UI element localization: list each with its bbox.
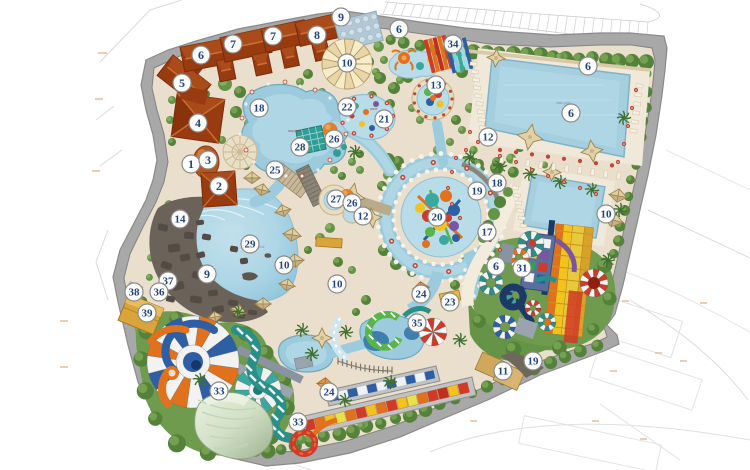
svg-text:24: 24	[324, 387, 336, 399]
svg-text:18: 18	[492, 178, 504, 190]
svg-text:10: 10	[332, 279, 344, 291]
svg-text:10: 10	[601, 209, 613, 221]
svg-text:17: 17	[482, 227, 494, 239]
svg-text:13: 13	[431, 80, 443, 92]
svg-text:21: 21	[379, 114, 390, 126]
svg-text:10: 10	[279, 260, 291, 272]
svg-text:34: 34	[448, 39, 460, 51]
svg-text:wave: wave	[370, 107, 378, 111]
svg-text:18: 18	[254, 103, 266, 115]
svg-text:2: 2	[216, 179, 222, 193]
svg-text:6: 6	[198, 48, 204, 62]
svg-text:6: 6	[568, 106, 574, 120]
svg-text:33: 33	[293, 417, 305, 429]
svg-text:20: 20	[432, 212, 444, 224]
svg-text:26: 26	[329, 134, 341, 146]
svg-text:11: 11	[498, 366, 508, 378]
svg-text:23: 23	[445, 297, 457, 309]
svg-text:6: 6	[585, 59, 591, 73]
svg-text:26: 26	[347, 198, 359, 210]
svg-text:38: 38	[129, 287, 141, 299]
svg-text:31: 31	[517, 263, 528, 275]
svg-text:19: 19	[472, 186, 484, 198]
svg-text:24: 24	[416, 289, 428, 301]
svg-text:7: 7	[230, 37, 236, 51]
svg-text:6: 6	[493, 259, 499, 273]
svg-text:9: 9	[338, 10, 344, 24]
svg-text:19: 19	[528, 356, 540, 368]
svg-text:9: 9	[204, 267, 210, 281]
svg-text:22: 22	[342, 102, 354, 114]
svg-text:4: 4	[195, 116, 201, 130]
svg-text:10: 10	[342, 58, 354, 70]
svg-text:25: 25	[270, 165, 282, 177]
svg-text:14: 14	[175, 214, 187, 226]
svg-text:lazy river: lazy river	[288, 129, 302, 133]
svg-text:6: 6	[396, 22, 402, 36]
svg-text:35: 35	[412, 318, 424, 330]
svg-text:7: 7	[270, 29, 276, 43]
svg-text:28: 28	[295, 142, 307, 154]
svg-text:12: 12	[358, 211, 370, 223]
svg-text:29: 29	[245, 239, 257, 251]
svg-text:36: 36	[154, 287, 166, 299]
svg-text:27: 27	[331, 194, 343, 206]
svg-text:5: 5	[179, 76, 185, 90]
svg-text:39: 39	[142, 308, 154, 320]
svg-text:3: 3	[205, 153, 211, 167]
svg-text:1: 1	[188, 157, 194, 171]
svg-text:8: 8	[314, 28, 320, 42]
svg-text:12: 12	[483, 132, 495, 144]
svg-text:33: 33	[214, 386, 226, 398]
